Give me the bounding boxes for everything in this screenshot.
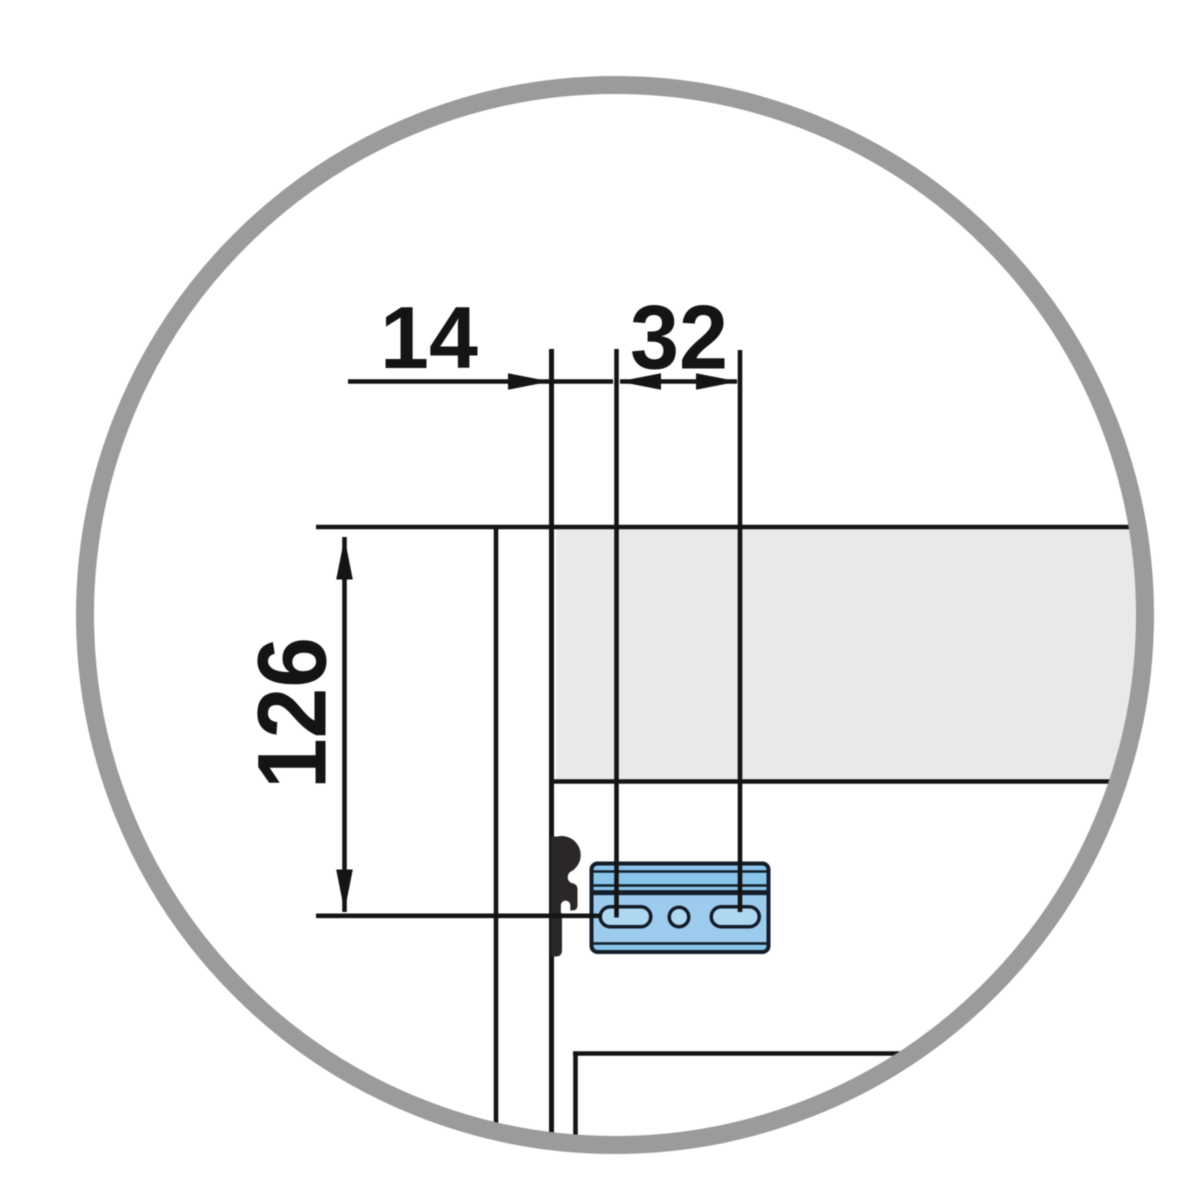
svg-text:32: 32 bbox=[630, 288, 728, 389]
svg-text:126: 126 bbox=[238, 637, 347, 789]
svg-text:14: 14 bbox=[380, 288, 478, 387]
